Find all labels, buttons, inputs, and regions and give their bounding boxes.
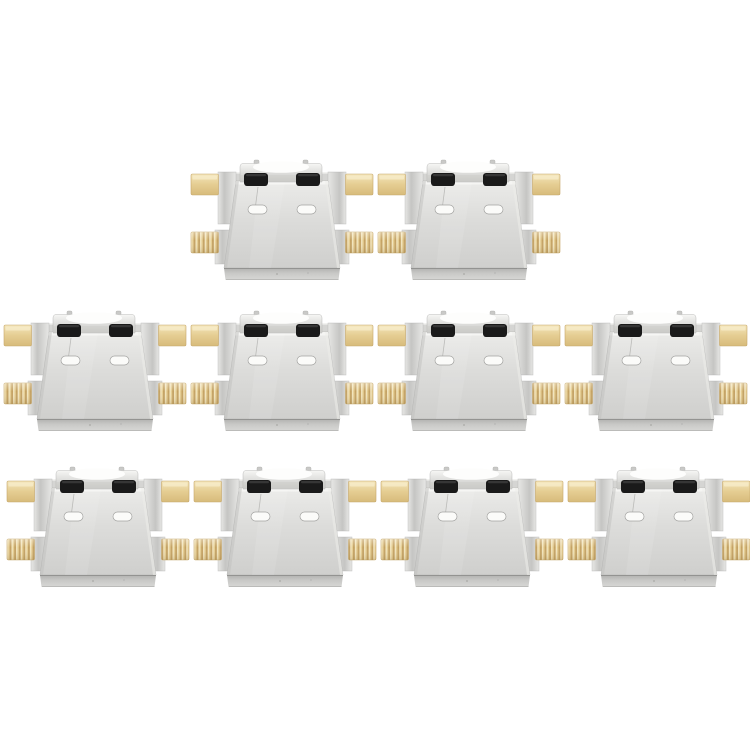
charging-port-connector-middle-4 bbox=[565, 311, 747, 431]
connectors-layer bbox=[4, 160, 750, 587]
photo-canvas bbox=[0, 0, 750, 750]
charging-port-connector-bottom-2 bbox=[194, 467, 376, 587]
charging-port-connector-middle-2 bbox=[191, 311, 373, 431]
charging-port-connector-bottom-1 bbox=[7, 467, 189, 587]
charging-port-connector-top-2 bbox=[378, 160, 560, 280]
product-photo bbox=[0, 0, 750, 750]
charging-port-connector-middle-1 bbox=[4, 311, 186, 431]
charging-port-connector-middle-3 bbox=[378, 311, 560, 431]
charging-port-connector-top-1 bbox=[191, 160, 373, 280]
charging-port-connector-bottom-4 bbox=[568, 467, 750, 587]
charging-port-connector-bottom-3 bbox=[381, 467, 563, 587]
